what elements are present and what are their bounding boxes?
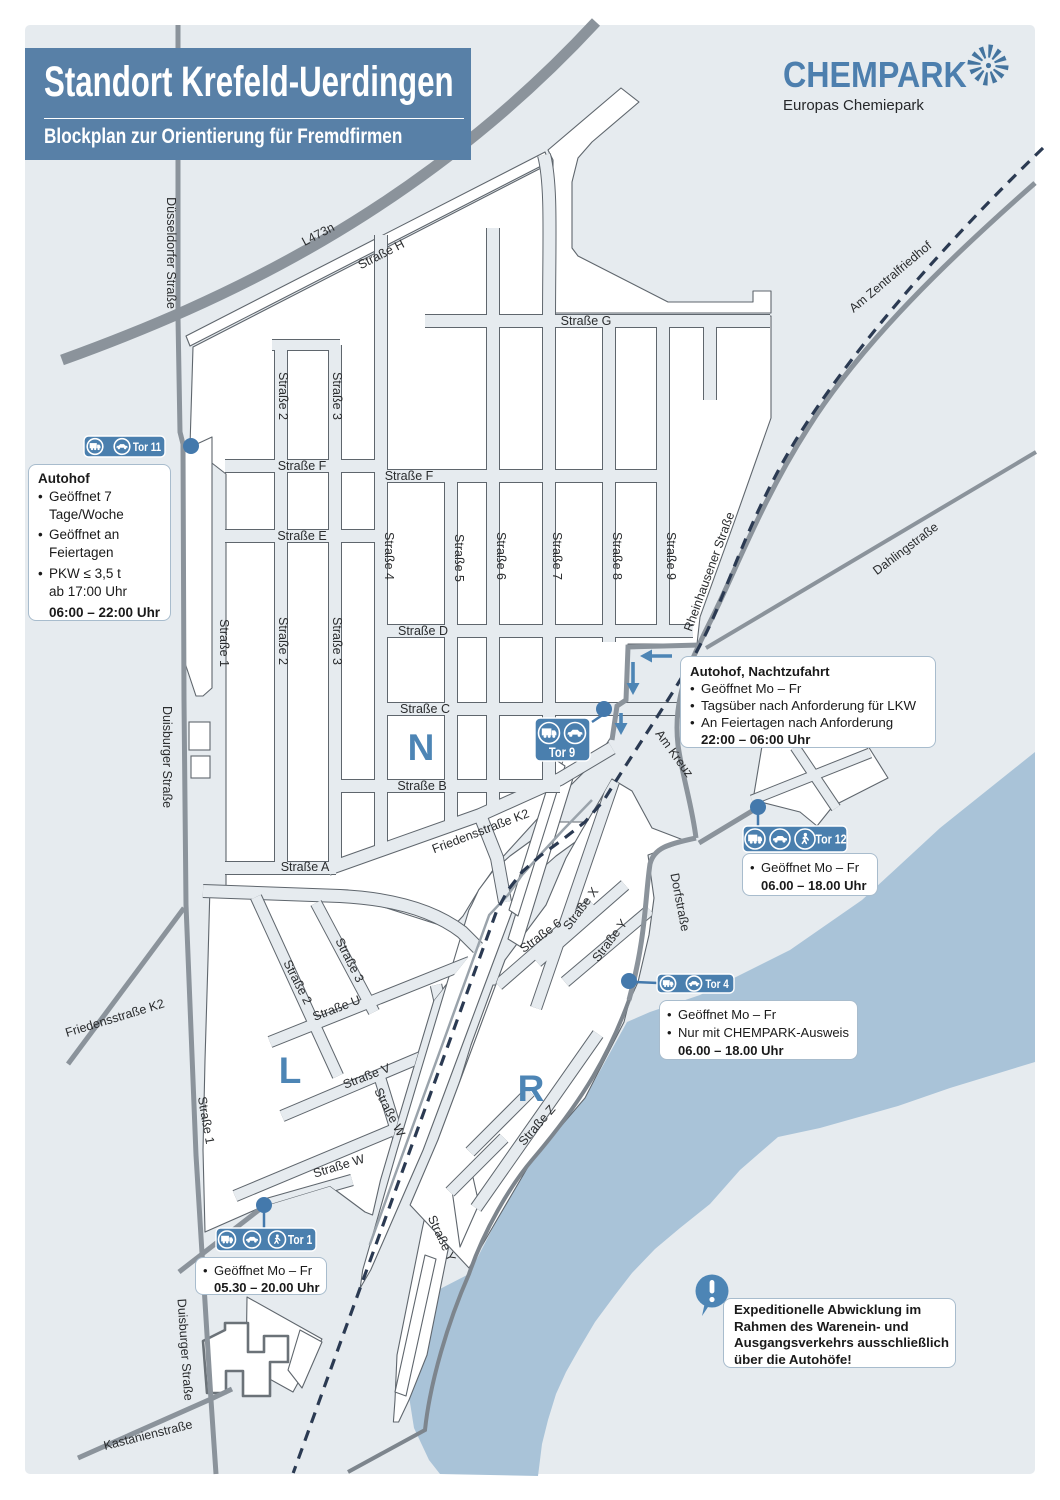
svg-text:N: N — [408, 727, 435, 768]
svg-text:Tor 4: Tor 4 — [705, 978, 729, 991]
svg-text:Tor 1: Tor 1 — [288, 1234, 313, 1247]
svg-text:Straße 4: Straße 4 — [382, 532, 396, 580]
svg-text:Düsseldorfer Straße: Düsseldorfer Straße — [164, 197, 178, 309]
svg-text:Straße 3: Straße 3 — [330, 617, 344, 665]
svg-text:Straße F: Straße F — [385, 469, 434, 483]
svg-text:Straße 5: Straße 5 — [452, 534, 466, 582]
svg-text:Straße 8: Straße 8 — [610, 532, 624, 580]
svg-text:Straße G: Straße G — [561, 314, 612, 328]
svg-text:Straße 1: Straße 1 — [217, 619, 231, 667]
svg-text:Tor 9: Tor 9 — [549, 745, 575, 760]
svg-text:Duisburger Straße: Duisburger Straße — [160, 706, 174, 808]
svg-text:Straße A: Straße A — [281, 860, 330, 874]
svg-text:Straße F: Straße F — [278, 459, 327, 473]
svg-text:Straße 2: Straße 2 — [276, 372, 290, 420]
svg-text:R: R — [518, 1068, 545, 1109]
svg-text:Straße 9: Straße 9 — [664, 532, 678, 580]
svg-text:Straße C: Straße C — [400, 702, 450, 716]
svg-text:Straße B: Straße B — [397, 779, 446, 793]
svg-text:Straße 3: Straße 3 — [330, 372, 344, 420]
svg-text:L: L — [279, 1050, 302, 1091]
svg-text:Straße E: Straße E — [277, 529, 326, 543]
svg-text:Straße 6: Straße 6 — [494, 532, 508, 580]
svg-text:Tor 12: Tor 12 — [815, 831, 847, 846]
svg-text:Tor 11: Tor 11 — [133, 441, 161, 454]
svg-text:Straße 2: Straße 2 — [276, 617, 290, 665]
svg-text:Straße D: Straße D — [398, 624, 448, 638]
svg-text:Straße 7: Straße 7 — [550, 532, 564, 580]
